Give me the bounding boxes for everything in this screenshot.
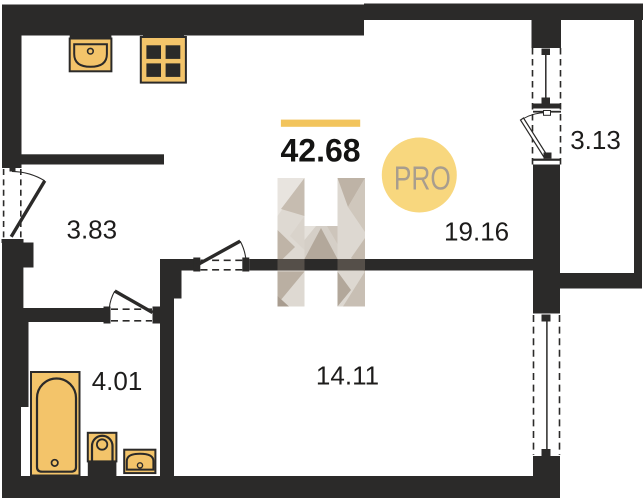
svg-text:42.68: 42.68 <box>281 132 361 168</box>
svg-text:3.83: 3.83 <box>66 215 117 245</box>
svg-text:PRO: PRO <box>394 160 451 197</box>
svg-text:14.11: 14.11 <box>316 360 379 390</box>
svg-text:19.16: 19.16 <box>444 216 509 246</box>
svg-text:4.01: 4.01 <box>92 366 143 396</box>
svg-text:3.13: 3.13 <box>570 125 621 155</box>
